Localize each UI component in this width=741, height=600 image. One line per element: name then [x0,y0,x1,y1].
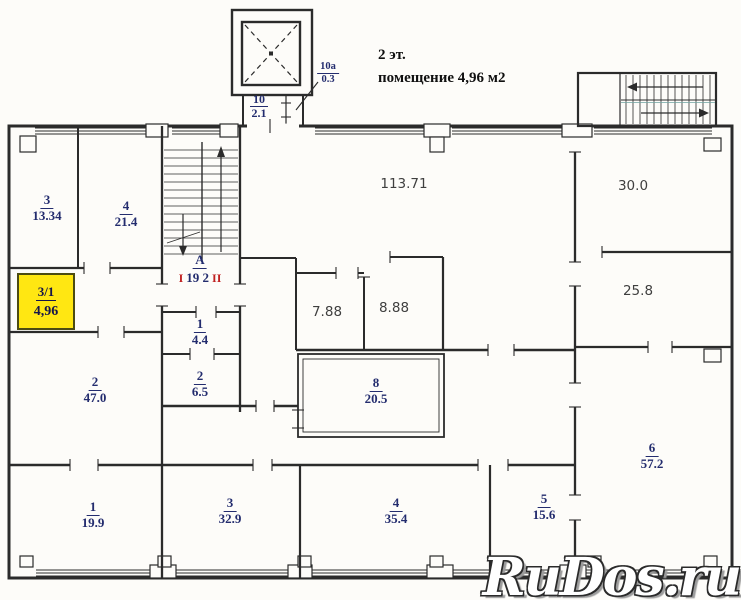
room-area: 4.4 [192,333,208,348]
elevator-annex-label: 10a 0.3 [317,61,339,86]
stairwell-mark-right: II [209,271,224,285]
stairwell-mark-left: I [176,271,187,285]
area-label: 30.0 [618,178,648,194]
highlighted-room-area: 4,96 [34,304,59,320]
room-label: 8 20.5 [365,376,388,406]
highlighted-room-number: 3/1 [36,284,57,301]
elevator-label: 10 2.1 [250,93,268,121]
elevator-shaft [232,10,318,133]
room-label: 1 4.4 [192,317,208,347]
room-area: 21.4 [115,215,138,230]
plan-title: 2 эт. помещение 4,96 м2 [378,44,505,89]
room-number: 5 [538,492,551,508]
room-number: 3 [224,496,237,512]
plan-title-line2: помещение 4,96 м2 [378,67,505,90]
room-area: 13.34 [32,209,61,224]
room-label: 4 21.4 [115,199,138,229]
area-label: 8.88 [379,300,409,316]
room-label: 5 15.6 [533,492,556,522]
room-label: 3 32.9 [219,496,242,526]
room-area: 47.0 [84,391,107,406]
room-label: 6 57.2 [641,441,664,471]
central-stairs [164,142,238,262]
room-number: 6 [646,441,659,457]
room-number: 8 [370,376,383,392]
room-label: 4 35.4 [385,496,408,526]
room-number: 2 [89,375,102,391]
room-area: 19.9 [82,516,105,531]
highlighted-room: 3/1 4,96 [17,273,75,330]
stairwell-area: 19 2 [186,270,209,285]
area-label: 25.8 [623,283,653,299]
area-label: 7.88 [312,304,342,320]
elevator-number: 10 [250,93,268,107]
floor-plan-drawing [0,0,741,600]
floor-plan: 2 эт. помещение 4,96 м2 10 2.1 10a 0.3 А… [0,0,741,600]
room-area: 57.2 [641,457,664,472]
room-area: 6.5 [192,385,208,400]
elevator-annex-area: 0.3 [317,74,339,86]
room-number: 3 [41,193,54,209]
room-area: 20.5 [365,392,388,407]
room-label: 2 6.5 [192,369,208,399]
room-label: 1 19.9 [82,500,105,530]
windows-top [20,124,721,152]
area-label: 113.71 [380,176,427,192]
room-area: 15.6 [533,508,556,523]
stairwell-letter: А [193,252,207,269]
elevator-area: 2.1 [250,107,268,120]
room-number: 1 [194,317,207,333]
room-number: 1 [87,500,100,516]
room-number: 4 [120,199,133,215]
room-label: 2 47.0 [84,375,107,405]
room-label: 3 13.34 [32,193,61,223]
elevator-annex-number: 10a [317,61,339,74]
plan-title-line1: 2 эт. [378,44,505,67]
stairwell-label: А I19 2II [176,252,225,286]
room-area: 32.9 [219,512,242,527]
watermark: RuDos.ru [483,547,740,600]
room-number: 4 [390,496,403,512]
exterior-stairs [578,73,716,126]
room-area: 35.4 [385,512,408,527]
room-number: 2 [194,369,207,385]
